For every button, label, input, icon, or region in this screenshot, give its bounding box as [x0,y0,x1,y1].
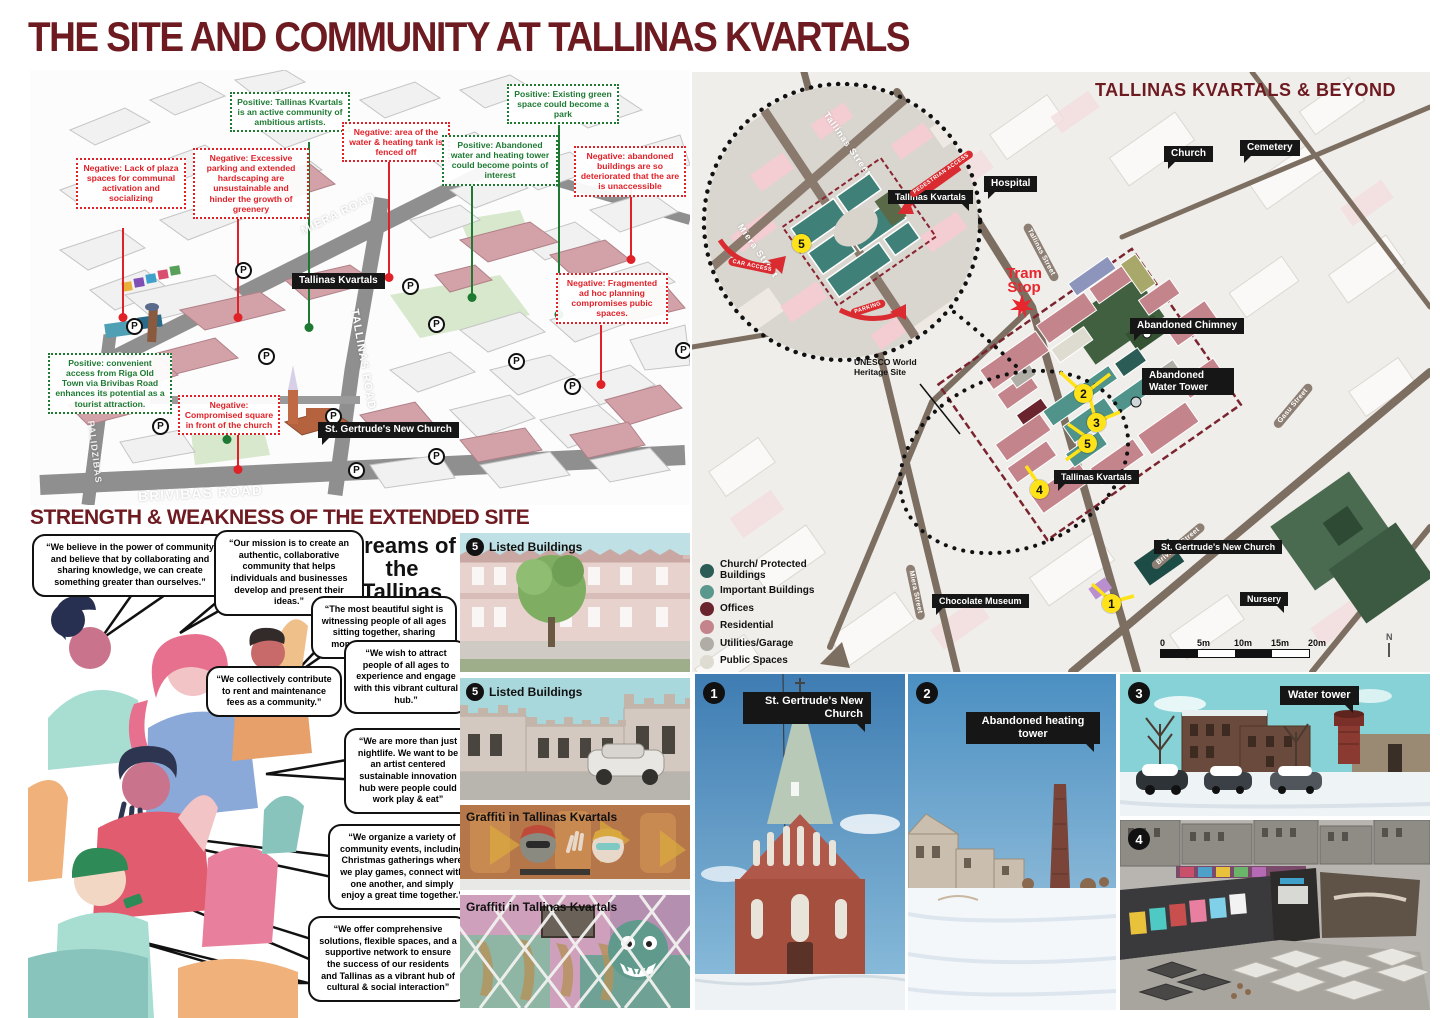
speech-bubble: “We believe in the power of community an… [32,534,228,597]
map-marker-2: 2 [1074,384,1093,403]
scale-bar: 0 5m 10m 15m 20m [1160,638,1345,658]
st-gertrudes-label: St. Gertrude's New Church [1154,540,1282,554]
leader-line [600,325,602,385]
market-photo-art [1120,820,1430,1010]
parking-icon: P [152,418,169,435]
legend-item: Public Spaces [700,655,830,669]
callout-positive-tower: Positive: Abandoned water and heating to… [442,135,558,186]
church-area-label: Church [1164,146,1213,162]
map-legend: Church/ Protected Buildings Important Bu… [700,560,830,672]
map-marker-5: 5 [1078,434,1097,453]
speech-bubble: “We organize a variety of community even… [328,824,460,910]
parking-icon: P [258,348,275,365]
legend-item: Utilities/Garage [700,637,830,651]
scale-tick: 20m [1308,638,1345,648]
cemetery-label: Cemetery [1240,140,1300,156]
callout-positive-artists: Positive: Tallinas Kvartals is an active… [230,92,350,132]
church-label: St. Gertrude's New Church [318,422,459,438]
photo-graffiti-1: Graffiti in Tallinas Kvartals [460,805,690,890]
tram-stop-label: Tram Stop [998,267,1050,296]
legend-dot-church [700,564,714,578]
callout-negative-parking: Negative: Excessive parking and extended… [193,148,309,219]
speech-bubble: “We wish to attract people of all ages t… [344,640,460,714]
legend-dot-utilities [700,637,714,651]
speech-bubble: “We are more than just nightlife. We wan… [344,728,460,814]
legend-item: Offices [700,602,830,616]
legend-dot-residential [700,620,714,634]
leader-line [388,160,390,278]
tram-stop-text: Tram Stop [1006,265,1042,296]
map-marker-1: 1 [1102,594,1121,613]
leader-line [471,183,473,298]
caption-text: Graffiti in Tallinas Kvartals [466,900,617,914]
map-marker-4: 4 [1030,480,1049,499]
abandoned-chimney-label: Abandoned Chimney [1130,318,1244,334]
speech-bubble: “We collectively contribute to rent and … [206,666,342,717]
beyond-map: TALLINAS KVARTALS & BEYOND Church Cemete… [692,72,1430,672]
tallinas-kvartals-label: Tallinas Kvartals [1054,470,1139,484]
parking-icon: P [428,448,445,465]
parking-icon: P [564,378,581,395]
photo-badge: 4 [1128,828,1150,850]
parking-icon: P [675,342,690,359]
callout-negative-fenced: Negative: area of the water & heating ta… [342,122,450,162]
legend-label: Utilities/Garage [720,639,793,650]
photo-listed-buildings-2: 5 Listed Buildings [460,678,690,800]
graffiti-1-caption: Graffiti in Tallinas Kvartals [466,810,617,824]
legend-item: Residential [700,620,830,634]
scale-bar-segments [1160,649,1310,658]
parking-icon: P [428,316,445,333]
scale-ticks: 0 5m 10m 15m 20m [1160,638,1345,648]
scale-tick: 10m [1234,638,1271,648]
photo-badge: 1 [703,682,725,704]
photo-graffiti-2: Graffiti in Tallinas Kvartals [460,895,690,1008]
map-marker-5-inset: 5 [792,234,811,253]
parking-icon: P [508,353,525,370]
presentation-board: THE SITE AND COMMUNITY AT TALLINAS KVART… [0,0,1440,1018]
callout-negative-deteriorated: Negative: abandoned buildings are so det… [574,146,686,197]
legend-label: Important Buildings [720,586,814,597]
site-label: Tallinas Kvartals [292,273,385,289]
speech-bubble: “We offer comprehensive solutions, flexi… [308,916,460,1002]
legend-label: Public Spaces [720,656,788,667]
listed-buildings-1-caption: 5 Listed Buildings [466,538,582,556]
leader-line [122,228,124,318]
legend-item: Church/ Protected Buildings [700,560,830,581]
photo-st-gertrudes-church: 1 St. Gertrude's New Church [695,674,905,1010]
photo-label: Abandoned heating tower [966,712,1100,744]
strength-weakness-heading: STRENGTH & WEAKNESS OF THE EXTENDED SITE [30,506,529,530]
count-badge: 5 [466,538,484,556]
scale-tick: 5m [1197,638,1234,648]
legend-label: Residential [720,621,773,632]
legend-dot-offices [700,602,714,616]
caption-text: Graffiti in Tallinas Kvartals [466,810,617,824]
axonometric-site-map: Negative: Lack of plaza spaces for commu… [30,70,690,505]
count-badge: 5 [466,683,484,701]
hospital-label: Hospital [984,176,1037,192]
photo-label: Water tower [1280,686,1359,705]
photo-listed-buildings-1: 5 Listed Buildings [460,533,690,672]
beyond-map-title: TALLINAS KVARTALS & BEYOND [1095,80,1396,101]
parking-icon: P [126,318,143,335]
parking-icon: P [235,262,252,279]
north-label: N [1386,632,1393,642]
legend-label: Church/ Protected Buildings [720,560,830,581]
photo-water-tower: 3 Water tower [1120,674,1430,816]
north-arrow: N [1386,632,1393,657]
church-photo-art [695,674,905,1010]
callout-positive-access: Positive: convenient access from Riga Ol… [48,353,172,414]
photo-market-aerial: 4 [1120,820,1430,1010]
chocolate-museum-label: Chocolate Museum [932,594,1029,608]
abandoned-water-tower-label: Abandoned Water Tower [1142,368,1234,395]
parking-icon: P [348,462,365,479]
caption-text: Listed Buildings [489,540,582,554]
north-needle [1388,643,1390,657]
scale-tick: 0 [1160,638,1197,648]
page-title: THE SITE AND COMMUNITY AT TALLINAS KVART… [28,14,909,61]
photo-badge: 2 [916,682,938,704]
photo-label: St. Gertrude's New Church [743,692,871,724]
unesco-label: UNESCO World Heritage Site [854,358,926,378]
legend-dot-important [700,585,714,599]
listed-buildings-2-caption: 5 Listed Buildings [466,683,582,701]
inset-site-label: Tallinas Kvartals [888,190,973,204]
photo-heating-tower: 2 Abandoned heating tower [908,674,1116,1010]
community-illustration: Dreams of the Tallinas Kvartals “We beli… [28,528,460,1018]
photo-badge: 3 [1128,682,1150,704]
nursery-label: Nursery [1240,592,1288,606]
legend-dot-public [700,655,714,669]
callout-positive-green: Positive: Existing green space could bec… [507,84,619,124]
graffiti-2-caption: Graffiti in Tallinas Kvartals [466,900,617,914]
legend-item: Important Buildings [700,585,830,599]
callout-negative-square: Negative: Compromised square in front of… [178,395,280,435]
callout-negative-fragmented: Negative: Fragmented ad hoc planning com… [556,273,668,324]
map-marker-3: 3 [1087,413,1106,432]
water-tower-photo-art [1120,674,1430,816]
scale-tick: 15m [1271,638,1308,648]
legend-label: Offices [720,604,754,615]
caption-text: Listed Buildings [489,685,582,699]
leader-line [237,435,239,470]
callout-negative-plaza: Negative: Lack of plaza spaces for commu… [76,158,186,209]
parking-icon: P [402,278,419,295]
